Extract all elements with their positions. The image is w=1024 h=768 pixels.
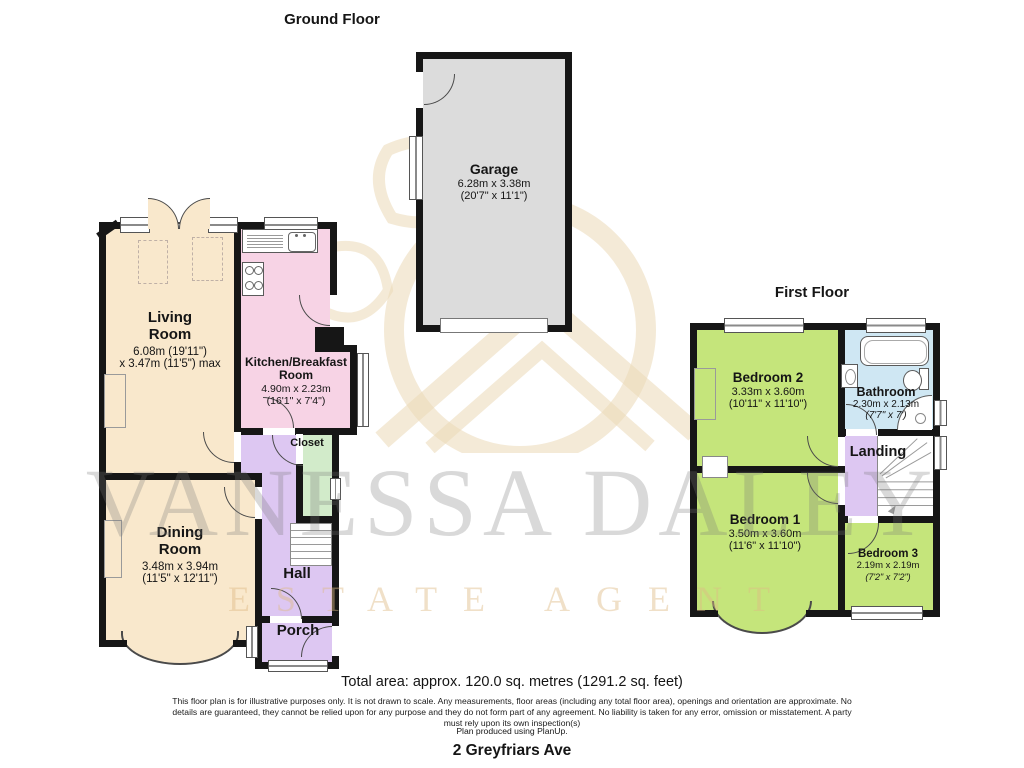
living-furniture-outline <box>192 237 223 281</box>
living-room-label: Living Room 6.08m (19'11") x 3.47m (11'5… <box>90 310 250 371</box>
produced-by-text: Plan produced using PlanUp. <box>0 726 1024 736</box>
kitchen-window-side <box>357 353 369 427</box>
room-dims-m: 3.48m x 3.94m <box>100 561 260 574</box>
hall-label: Hall <box>267 566 327 583</box>
porch-label: Porch <box>268 623 328 640</box>
room-name: Room <box>236 369 356 382</box>
room-dims-ft: (10'11" x 11'10") <box>688 398 848 410</box>
room-dims-ft: (11'5" x 12'11") <box>100 573 260 586</box>
bedroom3-window <box>851 606 923 620</box>
room-name: Kitchen/Breakfast <box>236 356 356 369</box>
room-dims-ft: x 3.47m (11'5") max <box>90 358 250 371</box>
ground-floor-title: Ground Floor <box>237 12 427 29</box>
stairs-window-side <box>934 436 947 470</box>
room-name: Bedroom 3 <box>833 548 943 561</box>
porch-window <box>246 626 258 658</box>
bedroom2-window <box>724 318 804 333</box>
bathroom-label: Bathroom 2.30m x 2.13m (7'7" x 7') <box>826 385 946 421</box>
room-dims-ft: (20'7" x 11'1") <box>414 190 574 202</box>
kitchen-sink-unit <box>242 229 318 253</box>
living-window-right <box>208 217 238 233</box>
room-dims-m: 3.33m x 3.60m <box>688 386 848 398</box>
bedroom2-label: Bedroom 2 3.33m x 3.60m (10'11" x 11'10"… <box>688 370 848 411</box>
bathroom-window-top <box>866 318 926 333</box>
garage-vehicle-door <box>440 318 548 333</box>
french-door-left-arc <box>148 198 179 229</box>
room-name: Room <box>100 542 260 559</box>
living-chimney-breast <box>104 374 126 428</box>
bedroom1-bay-window <box>712 601 812 634</box>
landing-label: Landing <box>828 444 928 460</box>
living-furniture-outline <box>138 240 168 284</box>
porch-threshold <box>268 660 328 672</box>
room-name: Room <box>90 327 250 344</box>
living-window-left <box>120 217 150 233</box>
bathtub <box>860 336 929 366</box>
room-name: Bathroom <box>826 385 946 399</box>
room-name: Garage <box>414 162 574 178</box>
room-name: Dining <box>100 525 260 542</box>
room-name: Bedroom 2 <box>688 370 848 385</box>
room-dims-m: 6.08m (19'11") <box>90 346 250 359</box>
ground-stairs <box>290 523 332 566</box>
room-dims-m: 3.50m x 3.60m <box>685 528 845 540</box>
total-area-text: Total area: approx. 120.0 sq. metres (12… <box>0 674 1024 690</box>
kitchen-label: Kitchen/Breakfast Room 4.90m x 2.23m (16… <box>236 356 356 407</box>
room-dims-ft: (16'1" x 7'4") <box>236 396 356 408</box>
first-floor-title: First Floor <box>737 285 887 302</box>
closet-window <box>330 478 341 500</box>
floor-plan-page: Ground Floor First Floor Garage 6.28m x … <box>0 0 1024 768</box>
room-dims-m: 4.90m x 2.23m <box>236 384 356 396</box>
room-dims-m: 6.28m x 3.38m <box>414 178 574 190</box>
room-dims-m: 2.30m x 2.13m <box>826 399 946 410</box>
bedroom-alcove <box>702 456 728 478</box>
garage-label: Garage 6.28m x 3.38m (20'7" x 11'1") <box>414 162 574 202</box>
room-dims-ft: (7'2" x 7'2") <box>833 572 943 582</box>
room-dims-m: 2.19m x 2.19m <box>833 561 943 572</box>
bedroom1-label: Bedroom 1 3.50m x 3.60m (11'6" x 11'10") <box>685 512 845 553</box>
room-dims-ft: (11'6" x 11'10") <box>685 540 845 552</box>
room-name: Bedroom 1 <box>685 512 845 527</box>
room-dims-ft: (7'7" x 7') <box>826 410 946 421</box>
disclaimer-text: This floor plan is for illustrative purp… <box>162 696 862 730</box>
kitchen-hob <box>242 262 264 296</box>
address-text: 2 Greyfriars Ave <box>0 742 1024 760</box>
dining-room-label: Dining Room 3.48m x 3.94m (11'5" x 12'11… <box>100 525 260 586</box>
bedroom3-label: Bedroom 3 2.19m x 2.19m (7'2" x 7'2") <box>833 548 943 582</box>
closet-label: Closet <box>277 437 337 449</box>
french-door-right-arc <box>179 198 210 229</box>
room-name: Living <box>90 310 250 327</box>
dining-bay-window <box>121 631 239 665</box>
